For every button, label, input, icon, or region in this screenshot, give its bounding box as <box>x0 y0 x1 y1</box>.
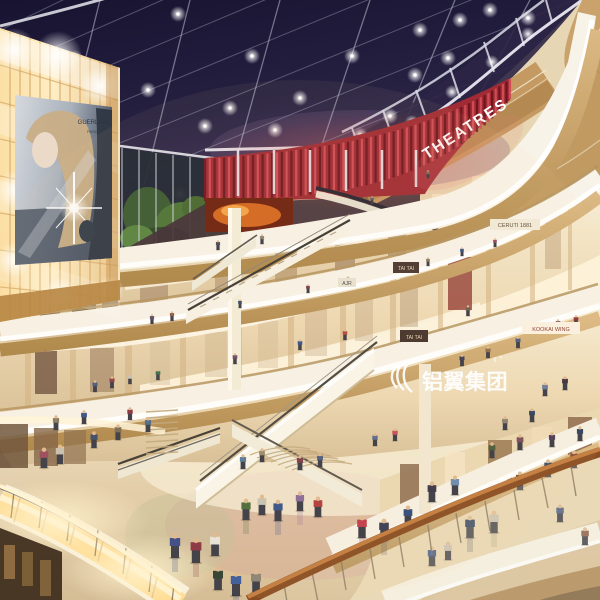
svg-text:PARIS: PARIS <box>87 129 99 134</box>
svg-text:GUERLAIN: GUERLAIN <box>78 120 109 126</box>
svg-text:铝翼集团: 铝翼集团 <box>422 370 508 394</box>
